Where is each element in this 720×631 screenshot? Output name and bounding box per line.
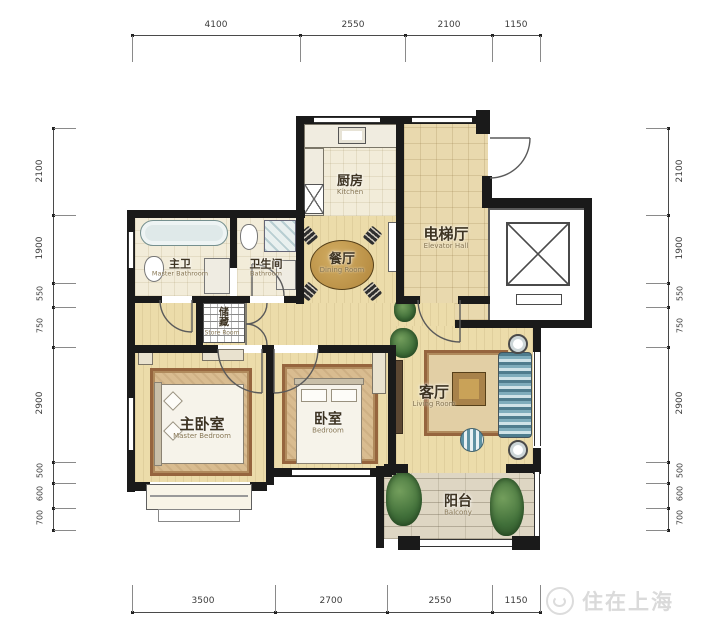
dining-label-en: Dining Room [320,267,365,275]
dim-left-7: 700 [36,500,45,536]
room-label-bedroom: 卧室 Bedroom [312,412,344,435]
wardrobe [372,352,386,394]
dim-top-3: 1150 [496,20,536,30]
sofa [498,352,532,438]
balcony-plant [386,472,422,526]
elevator-car [506,222,570,286]
bathroom-window [128,232,134,268]
dim-left-4: 2900 [35,385,45,421]
bed-headboard [294,378,364,385]
master-bedroom-window [128,398,134,450]
bay-window [146,484,252,510]
room-label-store-room: 储藏 Store Room [205,307,240,338]
floor-plan-image: 厨房 Kitchen 电梯厅 Elevator Hall 餐厅 Dining R… [0,0,720,631]
shower [264,220,296,252]
dim-left-1: 1900 [35,230,45,266]
side-table [508,440,528,460]
floor-lamp [460,428,484,452]
room-label-master-bedroom: 主卧室 Master Bedroom [173,416,231,440]
living-room-window [534,352,541,446]
dim-right-1: 1900 [675,230,685,266]
master-bathroom-label-en: Master Bathroom [152,270,208,277]
bedroom-label-en: Bedroom [312,428,344,436]
dim-top-1: 2550 [333,20,373,30]
dim-top-0: 4100 [196,20,236,30]
master-bed-headboard [154,382,162,466]
dim-top-2: 2100 [429,20,469,30]
room-label-dining: 餐厅 Dining Room [320,253,365,275]
master-bedroom-label-en: Master Bedroom [173,432,231,440]
balcony-plant [490,478,524,536]
bathroom-label-en: Bathroom [250,270,283,277]
room-label-bathroom: 卫生间 Bathroom [250,258,283,277]
bathtub [140,220,228,246]
elevator-hall-floor [404,124,488,320]
room-label-master-bathroom: 主卫 Master Bathroom [152,258,208,277]
side-table [508,334,528,354]
dim-right-4: 2900 [675,385,685,421]
store-room-label-en: Store Room [205,331,240,338]
room-label-balcony: 阳台 Balcony [444,494,472,517]
living-room-label-zh: 客厅 [413,384,456,401]
bay-window-ledge [158,509,240,522]
watermark: 住在上海 [546,586,674,616]
dim-bottom-0: 3500 [183,596,223,606]
dim-right-0: 2100 [675,153,685,189]
living-room-label-en: Living Room [413,400,456,408]
dim-bottom-1: 2700 [311,596,351,606]
elevator-hall-label-en: Elevator Hall [423,242,468,250]
dim-bottom-3: 1150 [496,596,536,606]
dim-bottom-2: 2550 [420,596,460,606]
watermark-logo-icon [546,587,574,615]
elevator-hall-label-zh: 电梯厅 [423,226,468,243]
bedroom-window [292,469,370,476]
balcony-railing [420,539,512,547]
coffee-table [452,372,486,406]
kitchen-sink [338,127,366,144]
pillow [301,389,327,402]
toilet [240,224,258,250]
room-label-kitchen: 厨房 Kitchen [337,175,363,197]
kitchen-label-en: Kitchen [337,189,363,197]
master-bedroom-label-zh: 主卧室 [173,416,231,433]
entry-window [412,117,472,123]
room-label-living-room: 客厅 Living Room [413,384,456,408]
dim-right-2: 550 [676,276,685,312]
dim-left-2: 550 [36,276,45,312]
pillow [331,389,357,402]
entry-door-arc [490,138,530,178]
watermark-text: 住在上海 [582,586,674,616]
dim-right-7: 700 [676,500,685,536]
balcony-railing-side [534,472,540,536]
kitchen-window [314,117,380,123]
dim-right-3: 750 [676,308,685,344]
fridge [304,184,324,214]
store-room-label-zh: 储藏 [216,307,227,327]
room-label-elevator-hall: 电梯厅 Elevator Hall [423,226,468,250]
dim-left-0: 2100 [35,153,45,189]
elevator-counterweight [516,294,562,305]
bay-window-sill [150,495,248,497]
balcony-label-en: Balcony [444,510,472,518]
dim-left-3: 750 [36,308,45,344]
